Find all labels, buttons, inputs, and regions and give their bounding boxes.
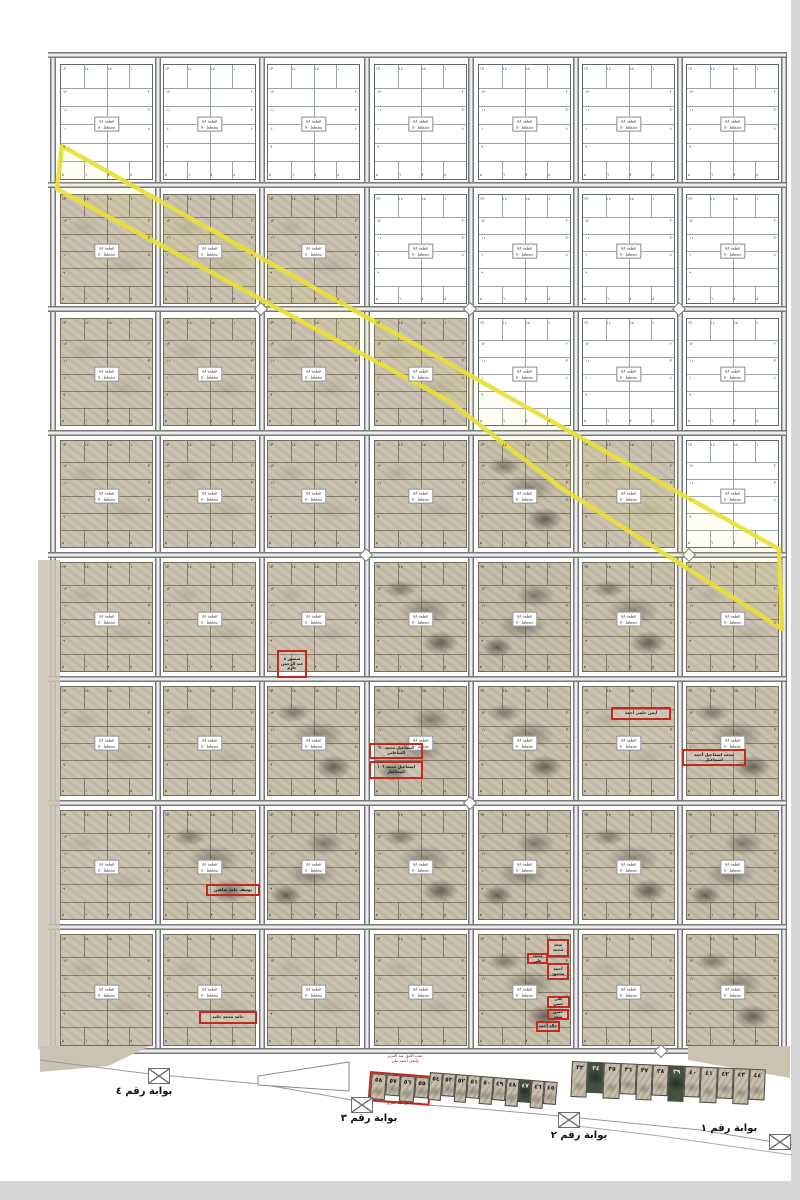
plot-number: ١١ (481, 977, 485, 981)
shop-plot: ٥٢ (453, 1074, 468, 1103)
plot-number: ١١ (377, 604, 381, 608)
plot-number: ١ (233, 689, 235, 693)
plot-number: ١١ (377, 236, 381, 240)
plot-number: ١٠ (166, 621, 170, 625)
plot-number: ١ (233, 67, 235, 71)
plot-number: ١٠ (166, 994, 170, 998)
block-label: قطعة ٥٨مخطط ٥٠ (301, 117, 326, 132)
plot-number: ١٢ (481, 90, 485, 94)
plot-number: ٩ (63, 1012, 65, 1016)
block-r5c5: ١٣١٤١٥١٥٦٧٨١٢١١١٠٩٢٣٤قطعة ٥٨مخطط ٥٠ (478, 562, 571, 672)
plot-number: ١ (444, 321, 446, 325)
plot-number: ١٤ (85, 443, 89, 447)
plot-number: ٦ (607, 541, 609, 545)
block-label-line2: مخطط ٥٠ (305, 374, 322, 379)
plot-number: ١ (130, 689, 132, 693)
plot-number: ١ (756, 443, 758, 447)
plot-number: ٣ (462, 481, 464, 485)
plot-number: ٩ (377, 515, 379, 519)
plot-number: ١٤ (292, 321, 296, 325)
plot-number: ٤ (251, 621, 253, 625)
plot-number: ٢ (566, 464, 568, 468)
subdivision-map-page: ١٣١٤١٥١٥٦٧٨١٢١١١٠٩٢٣٤قطعة ٥٨مخطط ٥٠١٣١٤١… (0, 0, 800, 1200)
plot-number: ١٣ (584, 321, 588, 325)
owner-tag: منصور ٨عبد الرحمنحازم (277, 650, 307, 678)
shop-plot-number: ٤٦ (532, 1083, 543, 1091)
plot-number: ١ (444, 689, 446, 693)
plot-number: ٨ (756, 789, 758, 793)
plot-number: ٤ (251, 745, 253, 749)
road-horizontal (48, 52, 786, 58)
plot-number: ٦ (607, 419, 609, 423)
block-label-line2: مخطط ٥٠ (620, 496, 637, 501)
plot-number: ١٣ (688, 67, 692, 71)
plot-number: ٨ (337, 789, 339, 793)
shop-plot-number: ٥٤ (430, 1075, 441, 1083)
plot-number: ٩ (166, 887, 168, 891)
plot-number: ١ (652, 565, 654, 569)
block-label-line2: مخطط ٥٠ (724, 867, 741, 872)
plot-number: ٧ (107, 419, 109, 423)
shop-plot: ٤٠ (684, 1066, 702, 1098)
plot-number: ٩ (481, 271, 483, 275)
plot-number: ٢ (355, 90, 357, 94)
plot-number: ٧ (733, 789, 735, 793)
block-label: قطعة ٥٨مخطط ٥٠ (408, 489, 433, 504)
plot-number: ٣ (462, 604, 464, 608)
plot-number: ٨ (233, 789, 235, 793)
plot-number: ١٢ (585, 90, 589, 94)
plot-number: ١ (130, 813, 132, 817)
plot-number: ٥ (62, 789, 64, 793)
plot-number: ٣ (566, 604, 568, 608)
plot-number: ١٢ (63, 711, 67, 715)
plot-number: ٨ (652, 665, 654, 669)
plot-number: ٩ (481, 145, 483, 149)
plot-number: ١١ (63, 236, 67, 240)
block-r7c6: ١٣١٤١٥١٥٦٧٨١٢١١١٠٩٢٣٤قطعة ٥٨مخطط ٥٠ (582, 810, 675, 920)
plot-number: ٣ (566, 108, 568, 112)
plot-number: ١٣ (480, 321, 484, 325)
plot-number: ٥ (480, 297, 482, 301)
plot-number: ١٤ (503, 689, 507, 693)
plot-number: ١٠ (63, 994, 67, 998)
block-r3c5: ١٣١٤١٥١٥٦٧٨١٢١١١٠٩٢٣٤قطعة ٥٨مخطط ٥٠ (478, 318, 571, 426)
plot-number: ١٢ (166, 342, 170, 346)
plot-number: ٨ (756, 1039, 758, 1043)
plot-number: ٦ (607, 789, 609, 793)
plot-number: ١٣ (584, 937, 588, 941)
road-horizontal (48, 800, 786, 806)
shop-plot: ٥٤ (428, 1072, 443, 1101)
plot-number: ١١ (166, 108, 170, 112)
owner-tag-line: محمود (552, 972, 565, 977)
plot-number: ١١ (63, 604, 67, 608)
plot-number: ١٥ (733, 67, 737, 71)
plot-number: ٢ (148, 90, 150, 94)
plot-number: ١٣ (62, 321, 66, 325)
intersection-marker (654, 1044, 668, 1058)
plot-number: ٢ (774, 587, 776, 591)
plot-number: ١٠ (585, 376, 589, 380)
plot-number: ١٢ (585, 464, 589, 468)
plot-number: ١٢ (689, 90, 693, 94)
owner-tag-line: حامد محمد حامد (212, 1015, 243, 1020)
plot-number: ٧ (733, 1039, 735, 1043)
block-r8c6: ١٣١٤١٥١٥٦٧٨١٢١١١٠٩٢٣٤قطعة ٥٨مخطط ٥٠ (582, 934, 675, 1046)
plot-number: ٣ (148, 108, 150, 112)
plot-number: ١٣ (62, 197, 66, 201)
plot-number: ١١ (585, 604, 589, 608)
plot-number: ١٥ (314, 197, 318, 201)
plot-number: ١ (233, 197, 235, 201)
plot-number: ٧ (629, 913, 631, 917)
plot-number: ١ (337, 321, 339, 325)
plot-number: ١٣ (269, 197, 273, 201)
plot-number: ٣ (148, 481, 150, 485)
plot-number: ٤ (566, 376, 568, 380)
plot-number: ١ (548, 565, 550, 569)
plot-number: ١١ (689, 852, 693, 856)
plot-number: ٤ (148, 621, 150, 625)
block-label: قطعة ٥٨مخطط ٥٠ (94, 117, 119, 132)
block-label: قطعة ٥٨مخطط ٥٠ (720, 367, 745, 382)
plot-number: ١٥ (629, 67, 633, 71)
plot-number: ٩ (585, 887, 587, 891)
plot-number: ٥ (584, 789, 586, 793)
plot-number: ٥ (269, 541, 271, 545)
plot-number: ١٤ (399, 565, 403, 569)
plot-number: ١٠ (689, 376, 693, 380)
plot-number: ١٥ (525, 813, 529, 817)
plot-number: ٣ (462, 359, 464, 363)
block-r8c1: ١٣١٤١٥١٥٦٧٨١٢١١١٠٩٢٣٤قطعة ٥٨مخطط ٥٠ (60, 934, 153, 1046)
plot-number: ٦ (85, 913, 87, 917)
plot-number: ٥ (165, 541, 167, 545)
block-label: قطعة ٥٨مخطط ٥٠ (408, 244, 433, 259)
plot-number: ١٠ (585, 498, 589, 502)
plot-number: ٢ (251, 90, 253, 94)
plot-number: ٤ (462, 253, 464, 257)
plot-number: ٨ (444, 297, 446, 301)
plot-number: ٨ (444, 1039, 446, 1043)
plot-number: ٣ (148, 852, 150, 856)
plot-number: ٣ (355, 852, 357, 856)
plot-number: ٤ (251, 376, 253, 380)
plot-number: ١٤ (399, 443, 403, 447)
plot-number: ٣ (355, 728, 357, 732)
plot-number: ٤ (462, 994, 464, 998)
block-label-line2: مخطط ٥٠ (305, 743, 322, 748)
plot-number: ٣ (670, 728, 672, 732)
plot-number: ٥ (480, 913, 482, 917)
plot-number: ٧ (629, 297, 631, 301)
plot-number: ١٣ (376, 565, 380, 569)
road-horizontal (48, 924, 786, 930)
plot-number: ١٢ (377, 342, 381, 346)
plot-number: ٤ (355, 621, 357, 625)
plot-number: ١ (233, 443, 235, 447)
plot-number: ٨ (548, 789, 550, 793)
shop-plot-number: ٥٣ (443, 1076, 454, 1084)
plot-number: ٥ (480, 541, 482, 545)
plot-number: ٨ (337, 541, 339, 545)
plot-number: ٩ (270, 763, 272, 767)
plot-number: ١٤ (188, 937, 192, 941)
gate-icon (148, 1068, 170, 1084)
plot-number: ٢ (566, 587, 568, 591)
plot-number: ٧ (107, 913, 109, 917)
plot-number: ٦ (188, 665, 190, 669)
plot-number: ٨ (756, 419, 758, 423)
block-label: قطعة ٥٨مخطط ٥٠ (301, 860, 326, 875)
plot-number: ١٠ (689, 621, 693, 625)
plot-number: ٣ (670, 481, 672, 485)
plot-number: ١٣ (376, 937, 380, 941)
plot-number: ١٤ (292, 197, 296, 201)
plot-number: ٧ (421, 173, 423, 177)
plot-number: ١١ (270, 977, 274, 981)
plot-number: ٣ (148, 359, 150, 363)
plot-number: ١٠ (481, 127, 485, 131)
plot-number: ٤ (462, 376, 464, 380)
plot-number: ١٠ (481, 745, 485, 749)
plot-number: ٧ (421, 1039, 423, 1043)
plot-number: ٩ (585, 1012, 587, 1016)
plot-number: ١٥ (525, 321, 529, 325)
plot-number: ١٢ (377, 464, 381, 468)
plot-number: ١٥ (629, 689, 633, 693)
plot-number: ٦ (188, 419, 190, 423)
plot-number: ١ (756, 689, 758, 693)
plot-number: ٩ (377, 639, 379, 643)
block-r4c7: ١٣١٤١٥١٥٦٧٨١٢١١١٠٩٢٣٤قطعة ٥٨مخطط ٥٠ (686, 440, 779, 548)
plot-number: ٤ (462, 127, 464, 131)
plot-number: ٦ (607, 665, 609, 669)
plot-number: ٢ (462, 342, 464, 346)
plot-number: ٣ (148, 977, 150, 981)
plot-number: ١٠ (481, 253, 485, 257)
plot-number: ١٤ (711, 937, 715, 941)
plot-number: ١٢ (481, 464, 485, 468)
plot-number: ١٠ (166, 498, 170, 502)
shop-plot-number: ٤٥ (545, 1084, 556, 1092)
block-label: قطعة ٥٨مخطط ٥٠ (512, 612, 537, 627)
plot-number: ٥ (376, 419, 378, 423)
block-label: قطعة ٥٨مخطط ٥٠ (301, 612, 326, 627)
plot-number: ١٣ (62, 565, 66, 569)
shop-plot: ٤٢ (716, 1067, 734, 1099)
plot-number: ٣ (462, 977, 464, 981)
plot-number: ٨ (130, 419, 132, 423)
shop-plot-number: ٣٦ (621, 1066, 635, 1074)
plot-number: ٤ (148, 127, 150, 131)
block-label-line2: مخطط ٥٠ (516, 374, 533, 379)
plot-number: ٨ (652, 297, 654, 301)
plot-number: ٦ (292, 913, 294, 917)
plot-number: ٤ (566, 869, 568, 873)
plot-number: ١٣ (269, 937, 273, 941)
plot-number: ١ (548, 443, 550, 447)
plot-number: ١٠ (270, 621, 274, 625)
plot-number: ٤ (566, 498, 568, 502)
plot-number: ١٤ (503, 67, 507, 71)
plot-number: ١٤ (503, 937, 507, 941)
block-label-line2: مخطط ٥٠ (305, 496, 322, 501)
plot-number: ٤ (462, 621, 464, 625)
plot-number: ٧ (733, 173, 735, 177)
strip-caption-bottom: عبده الحق عبد العزيز (372, 1100, 436, 1105)
plot-number: ٢ (355, 711, 357, 715)
plot-number: ١٣ (269, 321, 273, 325)
plot-number: ١٣ (165, 197, 169, 201)
block-label: قطعة ٥٨مخطط ٥٠ (94, 367, 119, 382)
plot-number: ٥ (165, 913, 167, 917)
block-r3c4: ١٣١٤١٥١٥٦٧٨١٢١١١٠٩٢٣٤قطعة ٥٨مخطط ٥٠ (374, 318, 467, 426)
plot-number: ٣ (566, 236, 568, 240)
block-label-line2: مخطط ٥٠ (724, 743, 741, 748)
plot-number: ٨ (337, 1039, 339, 1043)
block-label: قطعة ٥٨مخطط ٥٠ (94, 612, 119, 627)
plot-number: ٧ (107, 541, 109, 545)
plot-number: ١١ (166, 728, 170, 732)
plot-number: ٧ (525, 1039, 527, 1043)
plot-number: ١٤ (503, 197, 507, 201)
plot-number: ٥ (376, 789, 378, 793)
shop-plot-number: ٤٨ (507, 1081, 518, 1089)
block-label-line2: مخطط ٥٠ (620, 867, 637, 872)
plot-number: ٥ (62, 297, 64, 301)
plot-number: ٨ (233, 913, 235, 917)
block-label-line2: مخطط ٥٠ (305, 867, 322, 872)
plot-number: ١٠ (481, 869, 485, 873)
block-r3c1: ١٣١٤١٥١٥٦٧٨١٢١١١٠٩٢٣٤قطعة ٥٨مخطط ٥٠ (60, 318, 153, 426)
owner-tag-line: يوسف حامد شاهين (214, 888, 252, 893)
plot-number: ١٤ (188, 321, 192, 325)
plot-number: ١٢ (585, 342, 589, 346)
plot-number: ١١ (481, 481, 485, 485)
block-r3c3: ١٣١٤١٥١٥٦٧٨١٢١١١٠٩٢٣٤قطعة ٥٨مخطط ٥٠ (267, 318, 360, 426)
plot-number: ١٤ (85, 67, 89, 71)
plot-number: ١٥ (421, 443, 425, 447)
plot-number: ١٢ (481, 342, 485, 346)
plot-number: ١٠ (166, 253, 170, 257)
plot-number: ٩ (270, 1012, 272, 1016)
plot-number: ١ (548, 67, 550, 71)
block-label: قطعة ٥٨مخطط ٥٠ (616, 736, 641, 751)
plot-number: ١٠ (270, 376, 274, 380)
plot-number: ٤ (774, 869, 776, 873)
plot-number: ١٠ (270, 745, 274, 749)
block-label-line2: مخطط ٥٠ (98, 374, 115, 379)
plot-number: ٨ (444, 665, 446, 669)
plot-number: ٨ (130, 665, 132, 669)
plot-number: ١٤ (607, 443, 611, 447)
plot-number: ٧ (314, 1039, 316, 1043)
plot-number: ٣ (774, 977, 776, 981)
block-r2c1: ١٣١٤١٥١٥٦٧٨١٢١١١٠٩٢٣٤قطعة ٥٨مخطط ٥٠ (60, 194, 153, 304)
plot-number: ١٥ (421, 321, 425, 325)
plot-number: ١٥ (314, 443, 318, 447)
plot-number: ٧ (210, 665, 212, 669)
shop-plot-number: ٤٧ (520, 1082, 531, 1090)
plot-number: ١٥ (421, 197, 425, 201)
plot-number: ٧ (421, 789, 423, 793)
plot-number: ٨ (130, 173, 132, 177)
plot-number: ٦ (85, 665, 87, 669)
plot-number: ١٤ (188, 565, 192, 569)
plot-number: ١٥ (525, 937, 529, 941)
plot-number: ٢ (148, 219, 150, 223)
plot-number: ٦ (503, 419, 505, 423)
plot-number: ٣ (670, 108, 672, 112)
plot-number: ١١ (270, 852, 274, 856)
plot-number: ١٣ (376, 689, 380, 693)
plot-number: ١٣ (165, 689, 169, 693)
shop-plot-number: ٥٧ (387, 1077, 400, 1085)
plot-number: ١١ (585, 977, 589, 981)
owner-tag: حامد محمد حامد (199, 1011, 257, 1024)
shop-plot-number: ٤٣ (734, 1071, 748, 1079)
plot-number: ١٠ (377, 127, 381, 131)
shop-plot: ٣٣ (570, 1061, 588, 1098)
plot-number: ٥ (269, 297, 271, 301)
plot-number: ١ (756, 321, 758, 325)
block-label: قطعة ٥٨مخطط ٥٠ (616, 367, 641, 382)
plot-number: ٤ (355, 253, 357, 257)
plot-number: ٨ (652, 541, 654, 545)
plot-number: ٧ (107, 173, 109, 177)
block-r5c1: ١٣١٤١٥١٥٦٧٨١٢١١١٠٩٢٣٤قطعة ٥٨مخطط ٥٠ (60, 562, 153, 672)
plot-number: ١٢ (270, 587, 274, 591)
plot-number: ١٤ (188, 197, 192, 201)
plot-number: ١١ (585, 481, 589, 485)
owner-tag: اسماعيل محمد ٦٠الساعاتي (369, 743, 423, 759)
plot-number: ٩ (63, 393, 65, 397)
plot-number: ١١ (481, 728, 485, 732)
shop-plot: ٥٦ (399, 1075, 415, 1102)
plot-number: ١٤ (607, 321, 611, 325)
plot-number: ٥ (688, 665, 690, 669)
plot-number: ١٥ (107, 443, 111, 447)
plot-number: ٣ (251, 728, 253, 732)
plot-number: ٩ (270, 639, 272, 643)
plot-number: ٨ (548, 541, 550, 545)
plot-number: ٩ (689, 145, 691, 149)
strip-caption-line: عبده الحق عبد العزيز (372, 1100, 436, 1105)
plot-number: ٣ (251, 481, 253, 485)
plot-number: ١٣ (688, 813, 692, 817)
block-label: قطعة ٥٨مخطط ٥٠ (301, 736, 326, 751)
shop-plot-number: ٥٠ (481, 1079, 492, 1087)
plot-number: ١٥ (107, 197, 111, 201)
plot-number: ٣ (462, 852, 464, 856)
block-label: قطعة ٥٨مخطط ٥٠ (512, 244, 537, 259)
plot-number: ٤ (462, 498, 464, 502)
block-label: قطعة ٥٨مخطط ٥٠ (408, 612, 433, 627)
plot-number: ١٥ (107, 565, 111, 569)
plot-number: ٥ (269, 789, 271, 793)
plot-number: ٥ (584, 665, 586, 669)
plot-number: ٥ (165, 173, 167, 177)
plot-number: ١٥ (210, 197, 214, 201)
plot-number: ١٢ (377, 90, 381, 94)
plot-number: ١٠ (63, 253, 67, 257)
plot-number: ١٤ (292, 689, 296, 693)
gate-label: بوابة رقم ٤ (105, 1086, 183, 1097)
shop-plot-number: ٣٤ (589, 1065, 603, 1073)
shop-plot-number: ٣٣ (573, 1064, 587, 1072)
